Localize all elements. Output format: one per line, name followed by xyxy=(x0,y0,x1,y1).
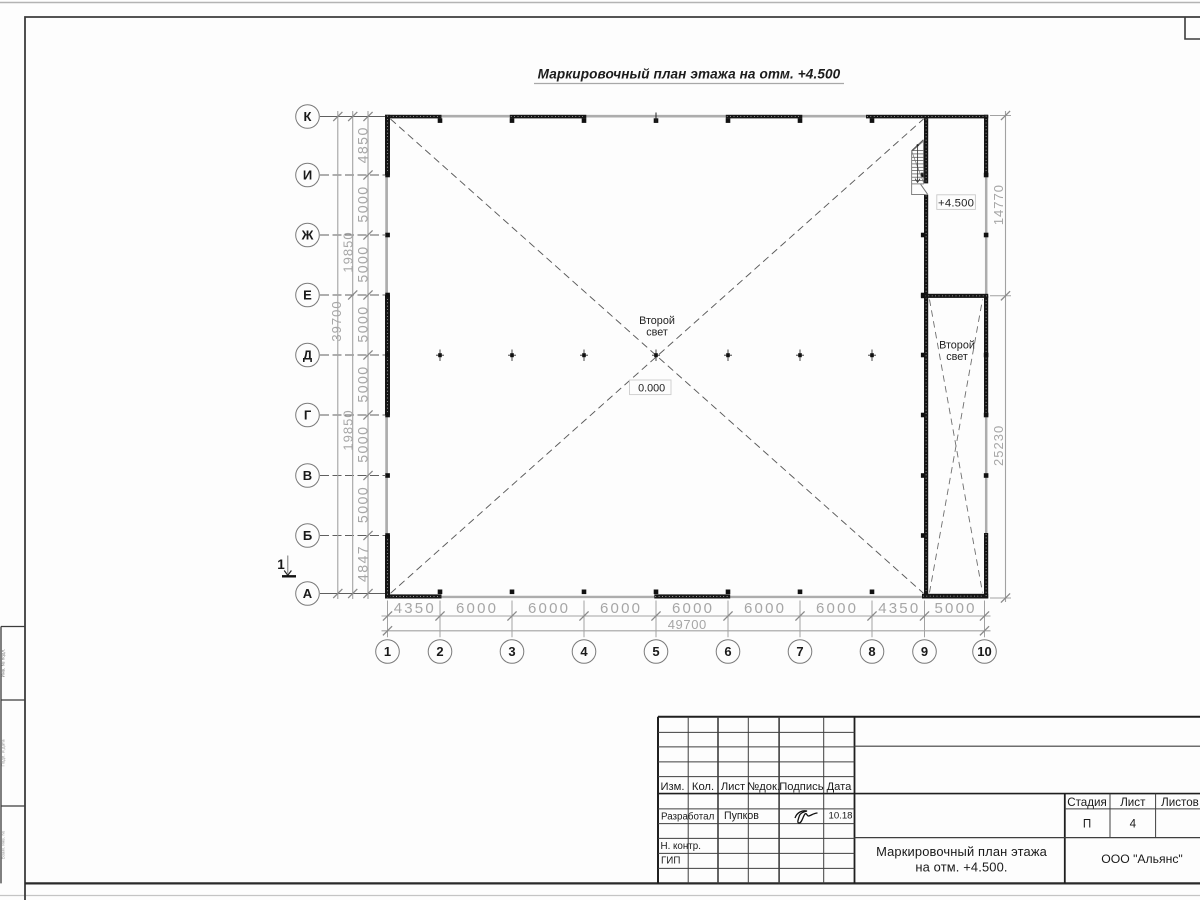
svg-text:Г: Г xyxy=(304,408,312,423)
svg-text:+4.500: +4.500 xyxy=(938,198,974,210)
svg-text:4847: 4847 xyxy=(355,545,371,582)
svg-text:7: 7 xyxy=(796,644,803,659)
svg-text:Пупков: Пупков xyxy=(724,810,759,822)
svg-text:И: И xyxy=(303,168,312,183)
svg-text:6000: 6000 xyxy=(816,600,858,617)
svg-text:Листов: Листов xyxy=(1161,796,1199,809)
svg-text:Н. контр.: Н. контр. xyxy=(661,841,701,852)
svg-text:1: 1 xyxy=(277,557,285,572)
svg-text:Второй: Второй xyxy=(639,315,675,327)
svg-text:19850: 19850 xyxy=(340,231,355,272)
svg-text:6000: 6000 xyxy=(528,600,570,617)
svg-text:6000: 6000 xyxy=(600,600,642,617)
svg-text:К: К xyxy=(304,109,312,124)
svg-text:№док.: №док. xyxy=(747,781,780,793)
svg-text:П: П xyxy=(1083,818,1091,831)
svg-text:14770: 14770 xyxy=(991,184,1006,225)
svg-text:Второй: Второй xyxy=(939,340,975,352)
svg-text:ГИП: ГИП xyxy=(661,856,680,867)
svg-text:Е: Е xyxy=(303,288,312,303)
svg-text:Стадия: Стадия xyxy=(1067,796,1107,809)
svg-text:В: В xyxy=(303,468,312,483)
svg-text:5000: 5000 xyxy=(935,600,977,617)
svg-text:свет: свет xyxy=(946,351,968,363)
svg-text:49700: 49700 xyxy=(668,617,707,632)
svg-text:Б: Б xyxy=(303,528,312,543)
svg-text:9: 9 xyxy=(921,644,928,659)
svg-text:19850: 19850 xyxy=(340,409,355,450)
svg-text:6000: 6000 xyxy=(672,600,714,617)
svg-text:Лист: Лист xyxy=(721,781,745,793)
svg-text:Маркировочный план этажа: Маркировочный план этажа xyxy=(876,844,1048,859)
svg-text:А: А xyxy=(303,586,313,601)
svg-text:6: 6 xyxy=(724,644,731,659)
svg-text:4850: 4850 xyxy=(355,126,371,163)
svg-text:5000: 5000 xyxy=(355,426,371,463)
svg-text:10.18: 10.18 xyxy=(829,810,853,821)
svg-text:1: 1 xyxy=(384,644,391,659)
svg-text:4350: 4350 xyxy=(878,600,920,617)
svg-text:Лист: Лист xyxy=(1120,796,1146,809)
svg-text:3: 3 xyxy=(508,644,515,659)
svg-text:2: 2 xyxy=(436,644,443,659)
svg-text:4: 4 xyxy=(1130,818,1137,831)
svg-text:8: 8 xyxy=(868,644,875,659)
svg-text:0.000: 0.000 xyxy=(638,383,665,395)
svg-text:на отм. +4.500.: на отм. +4.500. xyxy=(915,859,1007,874)
svg-text:Взам. инв. №: Взам. инв. № xyxy=(1,831,6,860)
svg-text:6000: 6000 xyxy=(744,600,786,617)
svg-text:свет: свет xyxy=(646,327,668,339)
svg-text:Разработал: Разработал xyxy=(661,812,715,823)
svg-text:25230: 25230 xyxy=(991,425,1006,466)
svg-text:Дата: Дата xyxy=(827,781,853,793)
svg-text:5000: 5000 xyxy=(355,486,371,523)
svg-text:5: 5 xyxy=(652,644,659,659)
svg-text:5000: 5000 xyxy=(355,365,371,402)
svg-text:Инв. № подл.: Инв. № подл. xyxy=(1,649,6,678)
svg-text:39700: 39700 xyxy=(329,300,344,341)
svg-text:Изм.: Изм. xyxy=(661,781,685,793)
svg-text:Кол.: Кол. xyxy=(692,781,714,793)
svg-text:Подп. и дата: Подп. и дата xyxy=(1,739,6,767)
svg-text:Маркировочный план этажа на от: Маркировочный план этажа на отм. +4.500 xyxy=(538,66,841,81)
svg-text:10: 10 xyxy=(977,644,991,659)
svg-text:Ж: Ж xyxy=(301,228,314,243)
svg-text:5000: 5000 xyxy=(355,305,371,342)
svg-text:5000: 5000 xyxy=(355,185,371,222)
svg-text:4: 4 xyxy=(580,644,588,659)
svg-text:Подпись: Подпись xyxy=(779,781,823,793)
svg-text:5000: 5000 xyxy=(355,245,371,282)
svg-text:ООО "Альянс": ООО "Альянс" xyxy=(1101,852,1183,866)
svg-text:6000: 6000 xyxy=(456,600,498,617)
svg-text:Д: Д xyxy=(303,348,313,363)
svg-text:4350: 4350 xyxy=(394,600,436,617)
